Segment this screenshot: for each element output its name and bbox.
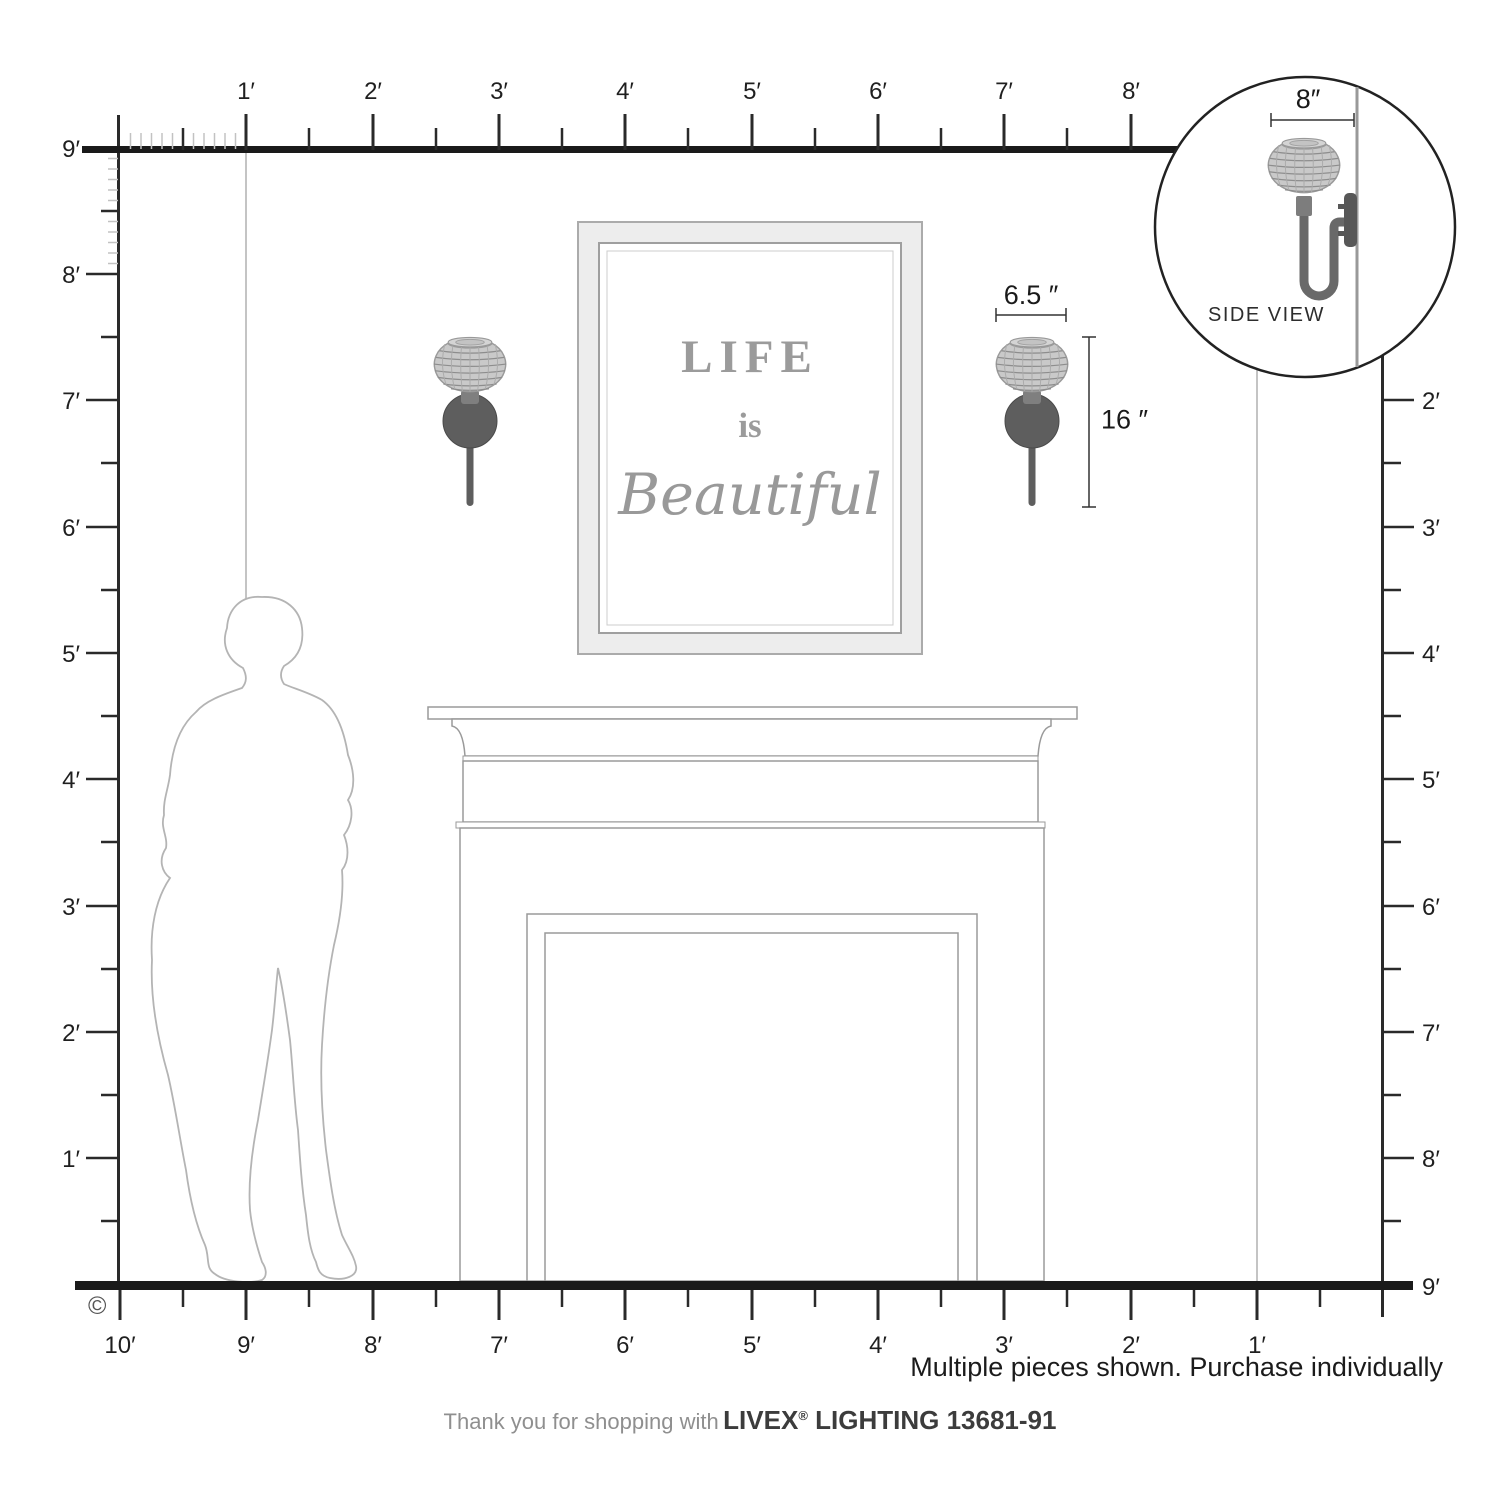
side-view-label: SIDE VIEW bbox=[1208, 304, 1325, 327]
top-ruler-label: 5′ bbox=[743, 78, 761, 106]
bottom-ruler-label: 10′ bbox=[104, 1332, 135, 1360]
artwork-text-life: LIFE bbox=[600, 330, 900, 384]
purchase-note: Multiple pieces shown. Purchase individu… bbox=[910, 1352, 1443, 1383]
top-ruler-label: 6′ bbox=[869, 78, 887, 106]
top-ruler-ticks bbox=[131, 114, 1132, 150]
left-sconce bbox=[434, 337, 506, 506]
left-ruler-label: 4′ bbox=[62, 767, 80, 795]
right-ruler-ticks bbox=[1382, 400, 1414, 1221]
left-ruler-label: 7′ bbox=[62, 388, 80, 416]
bottom-ruler-label: 8′ bbox=[364, 1332, 382, 1360]
artwork-text-beautiful: Beautiful bbox=[600, 462, 900, 528]
top-ruler-label: 2′ bbox=[364, 78, 382, 106]
product-dimension-diagram: 1′ 2′ 3′ 4′ 5′ 6′ 7′ 8′ 9′ 8′ 7′ 6′ 5′ 4… bbox=[0, 0, 1500, 1500]
right-ruler-label: 8′ bbox=[1422, 1146, 1440, 1174]
registered-mark: ® bbox=[798, 1408, 808, 1423]
left-ruler-label: 8′ bbox=[62, 262, 80, 290]
width-dimension-label: 6.5 ″ bbox=[1004, 280, 1059, 311]
left-ruler-label: 9′ bbox=[62, 136, 80, 164]
right-ruler-label: 2′ bbox=[1422, 388, 1440, 416]
left-ruler-label: 3′ bbox=[62, 894, 80, 922]
right-ruler-label: 9′ bbox=[1422, 1274, 1440, 1302]
bottom-ruler-label: 4′ bbox=[869, 1332, 887, 1360]
top-ruler-label: 4′ bbox=[616, 78, 634, 106]
footer: Thank you for shopping with LIVEX® LIGHT… bbox=[0, 1405, 1500, 1436]
bottom-ruler-ticks bbox=[120, 1290, 1320, 1320]
footer-thankyou-text: Thank you for shopping with bbox=[444, 1409, 719, 1434]
bottom-ruler-label: 9′ bbox=[237, 1332, 255, 1360]
side-view-inset bbox=[1155, 77, 1455, 377]
left-ruler-label: 6′ bbox=[62, 515, 80, 543]
height-dimension-label: 16 ″ bbox=[1101, 405, 1148, 436]
artwork-text-is: is bbox=[600, 406, 900, 446]
right-ruler-label: 4′ bbox=[1422, 641, 1440, 669]
right-ruler-label: 5′ bbox=[1422, 767, 1440, 795]
right-ruler-label: 6′ bbox=[1422, 894, 1440, 922]
brand-name: LIVEX® LIGHTING 13681-91 bbox=[723, 1405, 1056, 1435]
top-ruler-label: 7′ bbox=[995, 78, 1013, 106]
right-sconce bbox=[996, 337, 1068, 506]
depth-dimension-label: 8″ bbox=[1296, 84, 1321, 115]
bottom-ruler-label: 5′ bbox=[743, 1332, 761, 1360]
diagram-linework bbox=[0, 0, 1500, 1500]
right-ruler-label: 3′ bbox=[1422, 515, 1440, 543]
left-ruler-label: 2′ bbox=[62, 1020, 80, 1048]
left-ruler-label: 1′ bbox=[62, 1146, 80, 1174]
person-silhouette bbox=[152, 597, 357, 1282]
bottom-ruler-label: 6′ bbox=[616, 1332, 634, 1360]
fireplace bbox=[428, 707, 1077, 1281]
top-ruler-label: 8′ bbox=[1122, 78, 1140, 106]
top-ruler-label: 1′ bbox=[237, 78, 255, 106]
top-ruler-label: 3′ bbox=[490, 78, 508, 106]
bottom-ruler-label: 7′ bbox=[490, 1332, 508, 1360]
footer-model-number: LIGHTING 13681-91 bbox=[808, 1405, 1057, 1435]
right-ruler-label: 7′ bbox=[1422, 1020, 1440, 1048]
left-ruler-ticks bbox=[86, 159, 119, 1222]
copyright-mark: © bbox=[88, 1292, 106, 1321]
left-ruler-label: 5′ bbox=[62, 641, 80, 669]
